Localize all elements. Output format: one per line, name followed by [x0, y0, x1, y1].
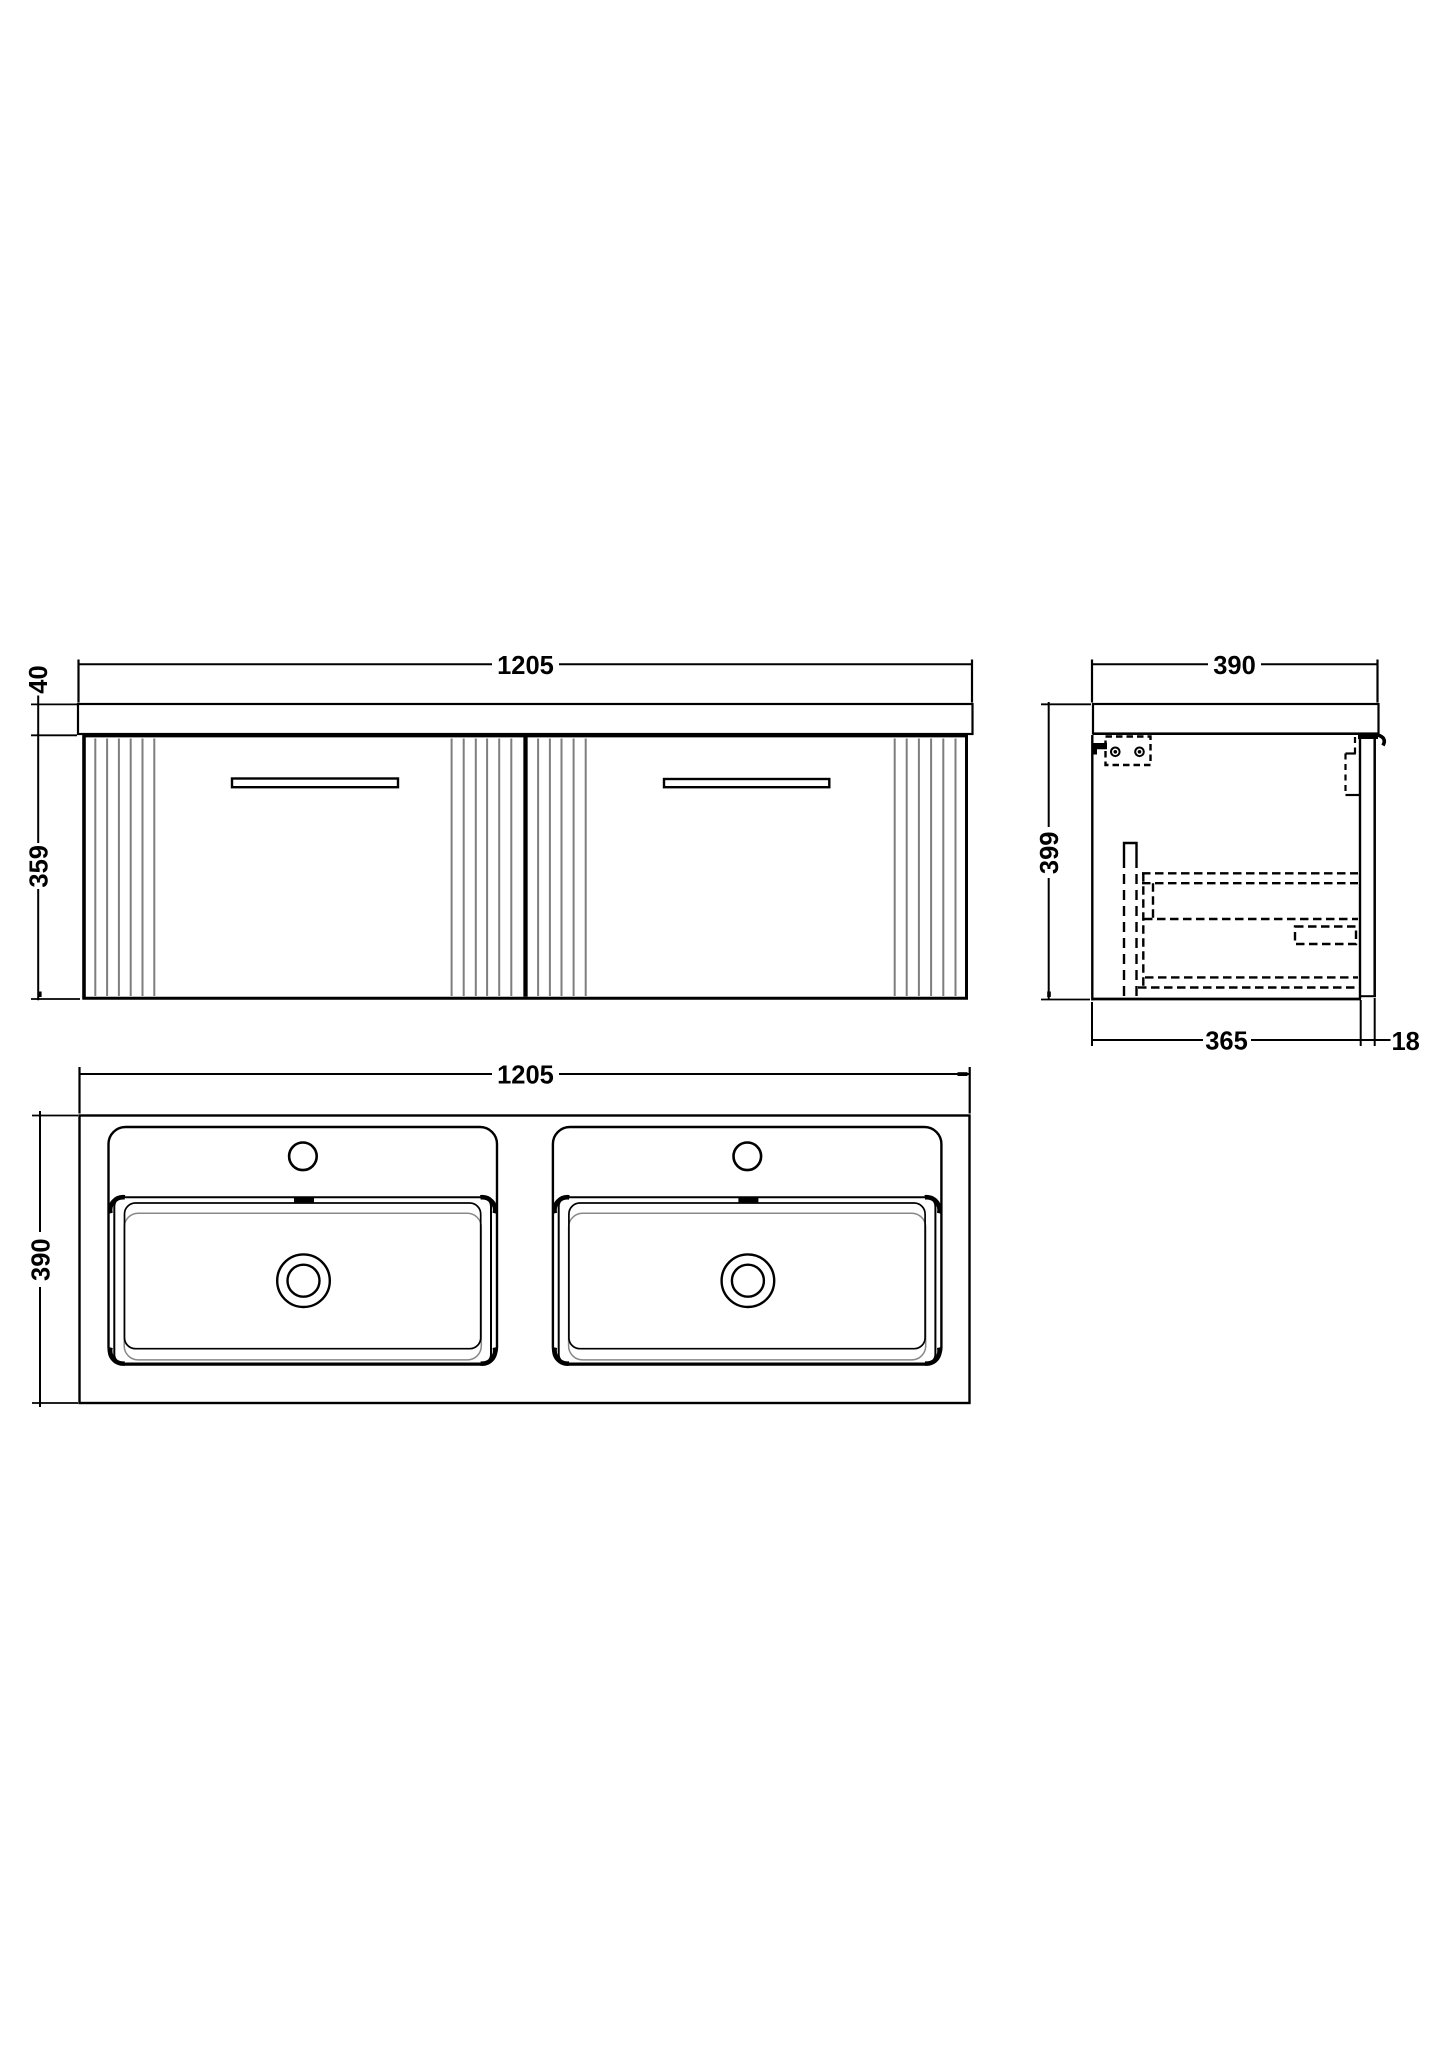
svg-text:390: 390	[28, 1238, 56, 1281]
svg-text:390: 390	[1213, 652, 1256, 680]
svg-text:365: 365	[1205, 1028, 1248, 1056]
svg-text:1205: 1205	[497, 1062, 554, 1090]
svg-text:1205: 1205	[497, 652, 554, 680]
svg-text:399: 399	[1036, 832, 1064, 875]
svg-text:18: 18	[1392, 1028, 1420, 1056]
svg-text:359: 359	[25, 845, 53, 888]
svg-text:40: 40	[25, 665, 53, 693]
